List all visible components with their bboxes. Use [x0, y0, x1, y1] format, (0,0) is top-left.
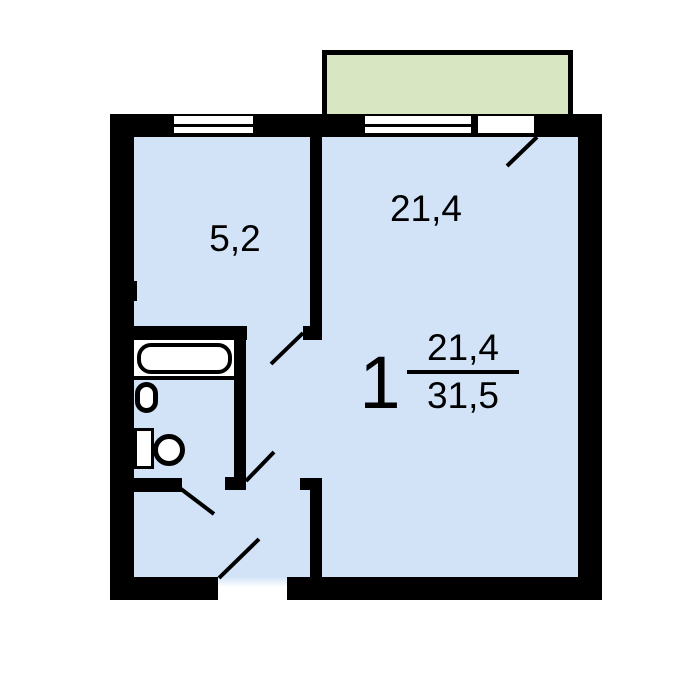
total-area-label: 31,5 — [427, 377, 499, 416]
bathroom-door-swing — [181, 489, 214, 514]
rooms-count-label: 1 — [352, 346, 408, 420]
kitchen-door-swing — [271, 333, 303, 364]
area-fraction: 21,4 31,5 — [407, 329, 519, 416]
living-area-label: 21,4 — [427, 329, 499, 368]
floor-plan: 5,2 21,4 1 21,4 31,5 — [0, 0, 700, 700]
kitchen-area-label: 5,2 — [175, 220, 295, 259]
living-room-door-swing — [246, 452, 274, 481]
entrance-door-swing — [219, 539, 259, 578]
fraction-bar — [407, 370, 519, 374]
living-room-area-label: 21,4 — [366, 190, 486, 229]
door-swing-lines — [0, 0, 700, 700]
balcony-door-swing — [507, 137, 537, 166]
